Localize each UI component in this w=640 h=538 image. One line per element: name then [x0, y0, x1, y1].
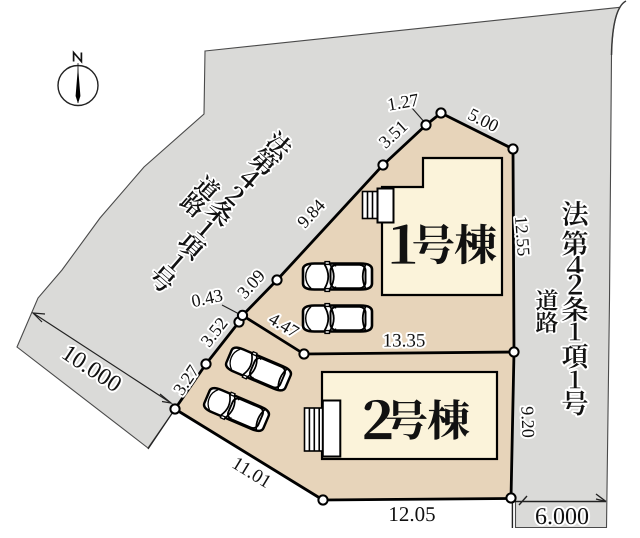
- svg-text:13.35: 13.35: [383, 331, 426, 352]
- svg-text:12.55: 12.55: [511, 215, 534, 257]
- svg-text:12.05: 12.05: [388, 502, 435, 526]
- svg-text:6.000: 6.000: [535, 504, 589, 530]
- svg-text:9.20: 9.20: [517, 406, 538, 438]
